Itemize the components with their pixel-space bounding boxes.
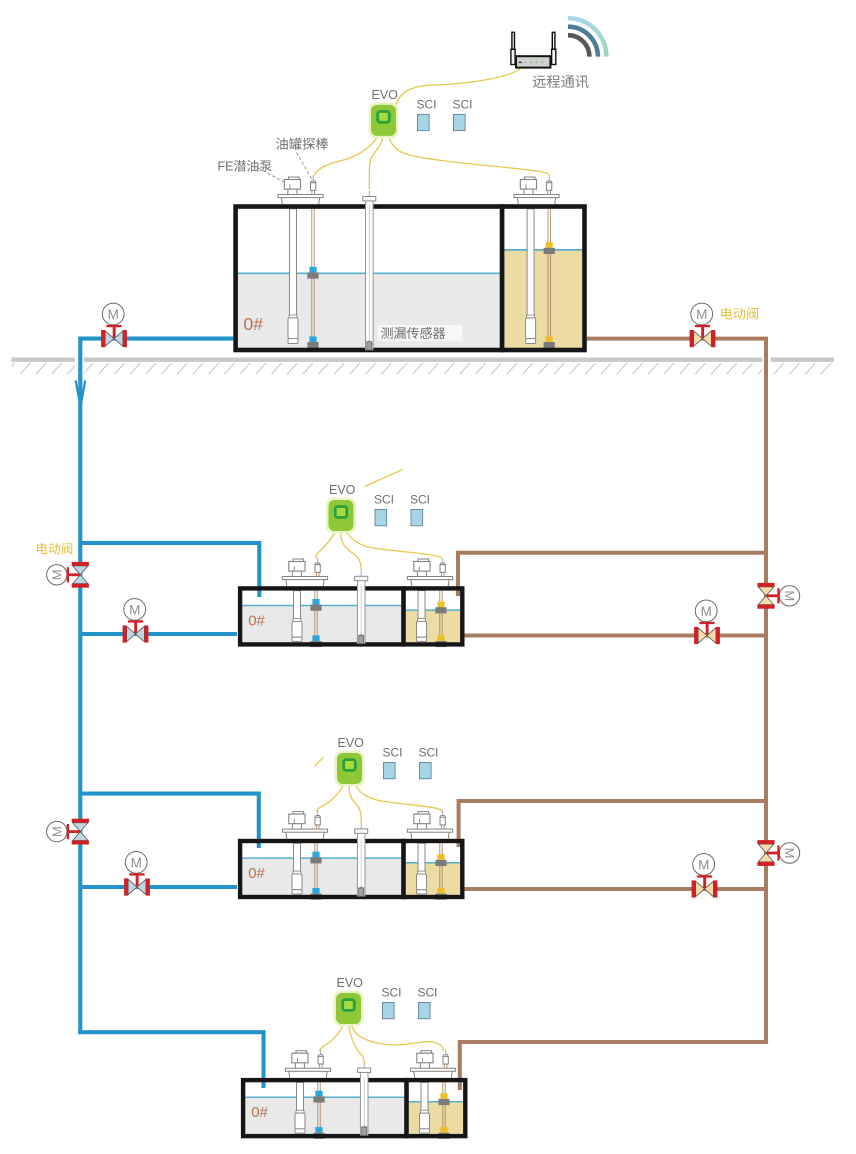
- svg-text:0#: 0#: [248, 865, 265, 882]
- svg-text:0#: 0#: [248, 612, 265, 629]
- svg-text:M: M: [49, 826, 64, 837]
- svg-text:EVO: EVO: [338, 736, 365, 750]
- svg-text:0#: 0#: [251, 1104, 268, 1121]
- svg-text:EVO: EVO: [372, 88, 399, 102]
- svg-text:SCI: SCI: [417, 97, 437, 111]
- svg-text:M: M: [696, 307, 707, 322]
- svg-text:SCI: SCI: [383, 746, 403, 760]
- svg-text:SCI: SCI: [453, 97, 473, 111]
- svg-text:EVO: EVO: [337, 976, 364, 990]
- svg-text:SCI: SCI: [418, 986, 438, 1000]
- svg-text:SCI: SCI: [419, 746, 439, 760]
- svg-text:M: M: [701, 604, 712, 619]
- svg-text:M: M: [108, 307, 119, 322]
- svg-text:M: M: [129, 602, 140, 617]
- svg-text:M: M: [782, 590, 797, 601]
- svg-text:SCI: SCI: [410, 493, 430, 507]
- svg-text:0#: 0#: [244, 314, 264, 334]
- svg-text:M: M: [49, 569, 64, 580]
- svg-text:M: M: [131, 855, 142, 870]
- svg-text:M: M: [782, 848, 797, 859]
- svg-text:FE: FE: [218, 160, 234, 174]
- svg-text:EVO: EVO: [329, 483, 356, 497]
- svg-text:SCI: SCI: [374, 493, 394, 507]
- svg-text:SCI: SCI: [382, 986, 402, 1000]
- svg-text:M: M: [698, 857, 709, 872]
